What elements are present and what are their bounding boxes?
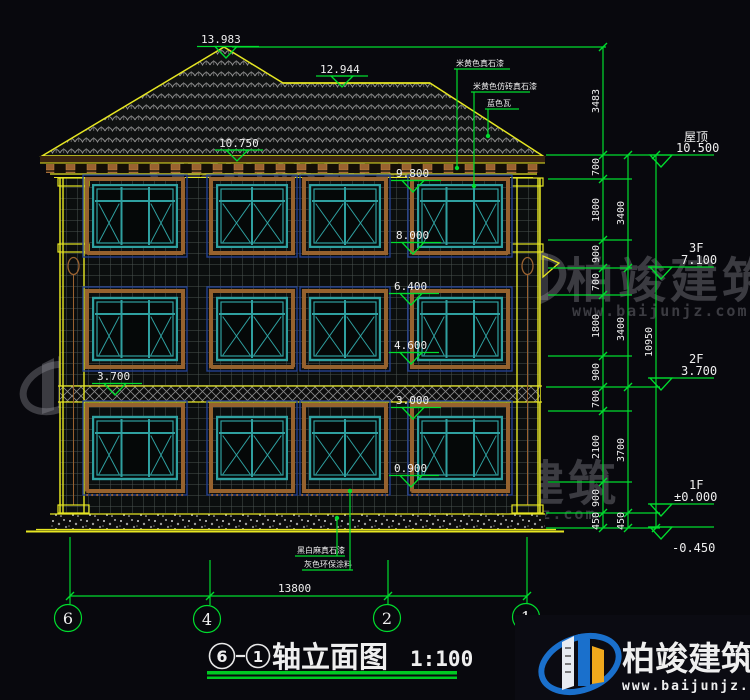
svg-text:6.400: 6.400 [394, 280, 427, 293]
svg-text:蓝色瓦: 蓝色瓦 [487, 98, 511, 108]
window-sill [84, 490, 186, 499]
svg-text:±0.000: ±0.000 [674, 490, 717, 504]
svg-text:3483: 3483 [591, 89, 602, 113]
svg-text:3.000: 3.000 [396, 394, 429, 407]
svg-text:13.983: 13.983 [201, 33, 241, 46]
dim-overall-height: 10950 [644, 327, 655, 357]
windows [83, 175, 512, 499]
svg-text:900: 900 [591, 489, 602, 507]
logo-building-blue [578, 634, 590, 686]
svg-text:700: 700 [591, 390, 602, 408]
svg-text:7.100: 7.100 [681, 253, 717, 267]
floor-band [60, 386, 540, 402]
svg-text:9.800: 9.800 [396, 167, 429, 180]
svg-text:900: 900 [591, 245, 602, 263]
title-text: 轴立面图 [272, 640, 388, 674]
axis-bubble-4: 4 [202, 610, 212, 629]
logo-building-white [562, 636, 574, 690]
logo-url-text: www.baijunjz.com [622, 679, 750, 694]
svg-text:黑白麻真石漆: 黑白麻真石漆 [297, 545, 345, 555]
logo-building-orange [592, 646, 604, 684]
svg-text:1800: 1800 [591, 198, 602, 222]
level-markers: 屋顶 10.500 3F 7.100 2F 3.700 1F ±0.000 -0… [648, 130, 719, 555]
drawing-canvas: 柏竣建筑 www.baijunjz.com 柏竣建筑 www.baijunjz.… [0, 0, 750, 700]
svg-text:3400: 3400 [616, 317, 627, 341]
axis-bubbles: 6 4 2 1 [55, 604, 540, 633]
svg-text:8.000: 8.000 [396, 229, 429, 242]
svg-text:10.750: 10.750 [219, 137, 259, 150]
plinth [26, 514, 564, 532]
window-2f-4 [408, 287, 512, 371]
window-3f-1 [83, 175, 187, 257]
svg-text:700: 700 [591, 158, 602, 176]
logo-brand-text: 柏竣建筑 [622, 639, 750, 678]
window-3f-4 [408, 175, 512, 257]
level-roof: 屋顶 10.500 [650, 130, 719, 167]
cad-elevation-drawing: 柏竣建筑 www.baijunjz.com 柏竣建筑 www.baijunjz.… [0, 0, 750, 700]
title-underline-2 [207, 677, 457, 680]
svg-text:米黄色仿砖真石漆: 米黄色仿砖真石漆 [473, 81, 537, 91]
svg-text:450: 450 [591, 512, 602, 530]
axis-bubble-2: 2 [382, 609, 392, 628]
svg-text:450: 450 [616, 512, 627, 530]
axis-bubble-6: 6 [63, 609, 73, 628]
svg-text:米黄色真石漆: 米黄色真石漆 [456, 58, 504, 68]
svg-text:3700: 3700 [616, 438, 627, 462]
window-2f-2 [207, 287, 297, 371]
window-sill [301, 490, 389, 499]
window-3f-2 [207, 175, 297, 257]
svg-text:900: 900 [591, 363, 602, 381]
svg-text:-0.450: -0.450 [672, 541, 715, 555]
cornice [40, 156, 545, 178]
level-2f: 2F 3.700 [648, 352, 717, 390]
svg-text:灰色环保涂料: 灰色环保涂料 [304, 559, 352, 569]
window-sill [409, 490, 511, 499]
svg-text:12.944: 12.944 [320, 63, 360, 76]
level-1f: 1F ±0.000 [648, 478, 717, 516]
svg-text:10.500: 10.500 [676, 141, 719, 155]
title-axis-end: 1 [253, 648, 263, 666]
window-3f-3 [300, 175, 390, 257]
level-base: -0.450 [648, 527, 715, 555]
svg-text:2100: 2100 [591, 435, 602, 459]
window-2f-3 [300, 287, 390, 371]
svg-text:1800: 1800 [591, 314, 602, 338]
brand-logo: 柏竣建筑 www.baijunjz.com [515, 615, 750, 700]
svg-text:700: 700 [591, 273, 602, 291]
dentil-row [46, 164, 540, 173]
svg-text:3.700: 3.700 [97, 370, 130, 383]
svg-text:3400: 3400 [616, 201, 627, 225]
title-scale: 1:100 [410, 647, 473, 671]
title-underline-1 [207, 671, 457, 675]
svg-text:3.700: 3.700 [681, 364, 717, 378]
title-axis-start: 6 [216, 647, 227, 666]
svg-text:4.600: 4.600 [394, 339, 427, 352]
dim-overall-width: 13800 [278, 582, 311, 595]
drawing-title: 6 1 轴立面图 1:100 [207, 640, 473, 679]
window-sill [208, 490, 296, 499]
svg-text:0.900: 0.900 [394, 462, 427, 475]
window-2f-1 [83, 287, 187, 371]
